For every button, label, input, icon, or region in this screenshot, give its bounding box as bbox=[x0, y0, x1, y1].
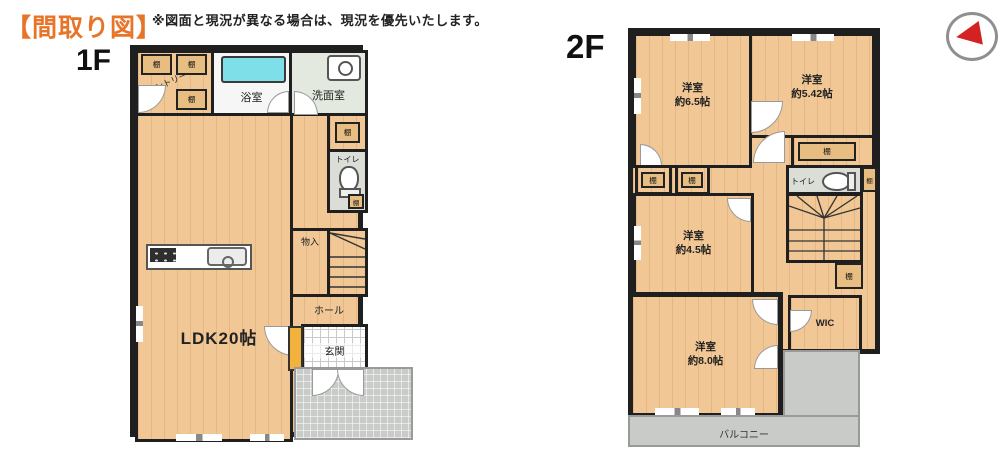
closet-a1: 棚 bbox=[635, 165, 672, 195]
room-size: 約5.42帖 bbox=[791, 88, 832, 100]
room-wic: WIC bbox=[788, 295, 862, 352]
balcony-label: バルコニー bbox=[630, 426, 858, 441]
room-size: 約4.5帖 bbox=[676, 244, 712, 256]
bedroom-b-label: 洋室 約5.42帖 bbox=[752, 74, 872, 101]
shelf-box: 棚 bbox=[141, 54, 172, 75]
window-gap bbox=[176, 434, 222, 441]
room-name: 洋室 bbox=[683, 230, 704, 242]
room-bedroom-a: 洋室 約6.5帖 bbox=[633, 33, 752, 168]
kitchen-sink-icon bbox=[207, 247, 247, 266]
hall-label: ホール bbox=[290, 302, 368, 317]
porch bbox=[294, 367, 413, 440]
room-storage: 物入 bbox=[290, 228, 330, 297]
shelf-label: 棚 bbox=[344, 127, 352, 138]
ldk-label: LDK20帖 bbox=[164, 324, 274, 349]
closet-shelf: 棚 bbox=[327, 113, 368, 152]
bedroom-c-label: 洋室 約4.5帖 bbox=[636, 230, 751, 257]
room-toilet-1f: トイレ 棚 bbox=[327, 149, 368, 213]
room-name: 洋室 bbox=[802, 74, 823, 86]
stairs-1f bbox=[327, 228, 368, 297]
kitchen-counter-icon bbox=[146, 244, 252, 270]
window-gap bbox=[792, 34, 834, 41]
floorplan-page: 【間取り図】 ※図面と現況が異なる場合は、現況を優先いたします。 1F 2F 棚… bbox=[0, 0, 1000, 452]
floor2-label: 2F bbox=[566, 28, 605, 66]
shelf-box: 棚 bbox=[176, 89, 207, 110]
shelf-box: 棚 bbox=[348, 194, 364, 209]
stairs-icon bbox=[789, 196, 860, 260]
bathtub-icon bbox=[221, 56, 286, 83]
room-washroom: 洗面室 bbox=[289, 50, 368, 116]
shelf-label: 棚 bbox=[153, 59, 161, 70]
north-compass-icon bbox=[946, 12, 998, 61]
door-arc bbox=[138, 85, 166, 113]
door-arc bbox=[640, 144, 662, 166]
room-hall: ホール bbox=[290, 294, 368, 327]
room-size: 約6.5帖 bbox=[675, 96, 711, 108]
window-gap bbox=[250, 434, 284, 441]
shelf-label: 棚 bbox=[845, 271, 853, 282]
toilet-label: トイレ bbox=[791, 176, 815, 187]
disclaimer-text: ※図面と現況が異なる場合は、現況を優先いたします。 bbox=[152, 10, 488, 29]
shelf-box: 棚 bbox=[641, 172, 665, 188]
room-name: 洋室 bbox=[695, 341, 716, 353]
room-bedroom-d: 洋室 約8.0帖 bbox=[628, 292, 783, 418]
toilet-icon bbox=[822, 172, 850, 191]
shelf-box: 棚 bbox=[335, 122, 360, 143]
shoe-cabinet bbox=[288, 326, 303, 371]
room-bath: 浴室 bbox=[211, 50, 292, 116]
shelf-box: 棚 bbox=[798, 142, 856, 161]
shelf-label: 棚 bbox=[866, 175, 873, 185]
door-arc bbox=[337, 369, 364, 396]
toilet-tank-icon bbox=[847, 172, 856, 191]
room-pantry: 棚 棚 棚 パントリー bbox=[135, 50, 214, 116]
window-gap bbox=[136, 306, 143, 342]
stove-icon bbox=[150, 248, 176, 262]
stairs-icon bbox=[330, 231, 365, 294]
closet-a2: 棚 bbox=[675, 165, 710, 195]
shelf-label: 棚 bbox=[353, 197, 360, 207]
shelf-label: 棚 bbox=[649, 175, 657, 186]
bedroom-a-label: 洋室 約6.5帖 bbox=[636, 82, 749, 109]
compass-needle-icon bbox=[954, 21, 983, 49]
shelf-label: 棚 bbox=[188, 94, 196, 105]
shelf-label: 棚 bbox=[823, 146, 831, 157]
room-name: 洋室 bbox=[682, 82, 703, 94]
balcony-side bbox=[783, 350, 860, 417]
door-arc bbox=[312, 369, 339, 396]
room-ldk: LDK20帖 bbox=[135, 113, 293, 442]
balcony: バルコニー bbox=[628, 415, 860, 447]
room-toilet-2f: トイレ bbox=[786, 165, 863, 195]
room-bedroom-c: 洋室 約4.5帖 bbox=[633, 193, 754, 295]
door-arc bbox=[752, 299, 778, 325]
window-gap bbox=[670, 34, 710, 41]
drain-icon bbox=[222, 256, 234, 268]
floor1-label: 1F bbox=[76, 44, 111, 78]
stairs-2f bbox=[786, 193, 863, 263]
door-arc bbox=[727, 198, 751, 222]
shelf-box: 棚 bbox=[862, 167, 877, 192]
sink-basin-icon bbox=[338, 61, 353, 76]
toilet-label: トイレ bbox=[330, 154, 365, 165]
shelf-box: 棚 bbox=[681, 172, 703, 188]
room-size: 約8.0帖 bbox=[688, 355, 724, 367]
room-entrance: 玄関 bbox=[301, 324, 368, 373]
sink-icon bbox=[327, 55, 361, 81]
shelf-box: 棚 bbox=[835, 263, 863, 289]
closet-bedroom-b: 棚 bbox=[791, 135, 875, 168]
shelf-label: 棚 bbox=[688, 175, 696, 186]
entrance-label: 玄関 bbox=[304, 343, 365, 358]
window-gap bbox=[634, 78, 641, 114]
window-gap bbox=[634, 226, 641, 260]
page-title: 【間取り図】 bbox=[6, 8, 162, 44]
storage-label: 物入 bbox=[293, 235, 327, 248]
